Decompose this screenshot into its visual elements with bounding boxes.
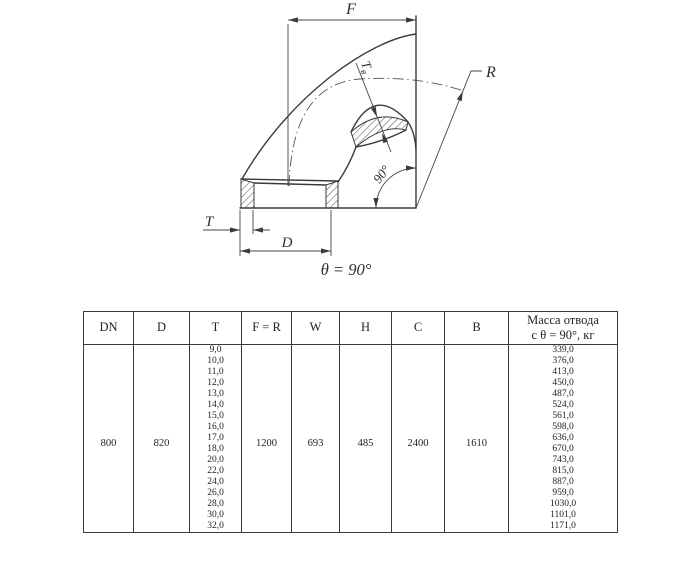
table-cell-line: 1101,0 (509, 510, 617, 521)
table-cell-line: 487,0 (509, 389, 617, 400)
table-cell-line: 11,0 (190, 367, 241, 378)
table-cell-line: 413,0 (509, 367, 617, 378)
table-cell-line: 20,0 (190, 455, 241, 466)
table-cell-line: 524,0 (509, 400, 617, 411)
table-cell-line: 561,0 (509, 411, 617, 422)
inner-arc-left (338, 147, 356, 182)
cell-h-value: 485 (339, 345, 391, 532)
col-header-h: H (339, 312, 391, 345)
datasheet-page: F R T D Тв 90° θ = 90° DN D T F = R W H … (0, 0, 700, 573)
r-leader-line (416, 71, 482, 208)
table-cell-line: 450,0 (509, 378, 617, 389)
f-arrow-right (406, 17, 416, 22)
table-cell-line: 12,0 (190, 378, 241, 389)
outer-arc (242, 34, 416, 179)
elbow-body (240, 16, 416, 208)
d-arrow-left (240, 248, 250, 253)
dim-label-f: F (345, 1, 356, 18)
table-cell-line: 1171,0 (509, 521, 617, 532)
table-cell-line: 30,0 (190, 510, 241, 521)
t-arrow-right (253, 227, 263, 232)
dimensions-table: DN D T F = R W H C B Масса отвода с θ = … (83, 311, 618, 533)
table-cell-line: 17,0 (190, 433, 241, 444)
dim-label-r: R (485, 64, 496, 81)
dimension-lines (203, 20, 482, 256)
dim-label-d: D (281, 235, 293, 251)
cell-w-value: 693 (291, 345, 339, 532)
elbow-technical-drawing: F R T D Тв 90° θ = 90° (0, 0, 700, 300)
table-cell-line: 636,0 (509, 433, 617, 444)
corner-angle-label: 90° (370, 162, 393, 186)
table-cell-line: 22,0 (190, 466, 241, 477)
table-cell-line: 18,0 (190, 444, 241, 455)
table-cell-line: 743,0 (509, 455, 617, 466)
table-cell-line: 670,0 (509, 444, 617, 455)
tv-arrow-upper (371, 107, 380, 118)
cell-mass-values: 339,0376,0413,0450,0487,0524,0561,0598,0… (508, 345, 617, 532)
r-arrow (457, 90, 466, 101)
corner-arc-arrow-top (406, 165, 416, 170)
dim-label-t: T (205, 214, 215, 230)
table-cell-line: 13,0 (190, 389, 241, 400)
table-cell-line: 9,0 (190, 345, 241, 356)
table-cell-line: 815,0 (509, 466, 617, 477)
col-header-c: C (391, 312, 444, 345)
col-header-b: B (444, 312, 508, 345)
table-cell-line: 959,0 (509, 488, 617, 499)
table-cell-line: 339,0 (509, 345, 617, 356)
dim-label-tv-sub: в (358, 68, 370, 77)
table-cell-line: 28,0 (190, 499, 241, 510)
upper-end-wall-hatch (351, 117, 408, 147)
col-header-t: T (189, 312, 241, 345)
col-header-d: D (133, 312, 189, 345)
table-cell-line: 26,0 (190, 488, 241, 499)
right-wall-section-hatch (326, 181, 338, 208)
left-wall-section-hatch (241, 179, 254, 208)
cell-f-r-value: 1200 (241, 345, 291, 532)
table-cell-line: 16,0 (190, 422, 241, 433)
inner-arc-right (408, 122, 416, 150)
f-arrow-left (288, 17, 298, 22)
drawing-caption: θ = 90° (321, 260, 372, 279)
cell-b-value: 1610 (444, 345, 508, 532)
cell-d-value: 820 (133, 345, 189, 532)
d-arrow-right (321, 248, 331, 253)
t-arrow-left (230, 227, 240, 232)
cell-dn-value: 800 (84, 345, 133, 532)
cell-c-value: 2400 (391, 345, 444, 532)
arrowheads (230, 17, 465, 253)
col-header-f-r: F = R (241, 312, 291, 345)
table-cell-line: 1030,0 (509, 499, 617, 510)
table-cell-line: 598,0 (509, 422, 617, 433)
corner-arc-arrow-bottom (373, 198, 378, 208)
table-cell-line: 15,0 (190, 411, 241, 422)
left-face-bore-edge (254, 183, 326, 185)
table-cell-line: 10,0 (190, 356, 241, 367)
table-cell-line: 376,0 (509, 356, 617, 367)
col-header-mass: Масса отвода с θ = 90°, кг (508, 312, 617, 345)
table-cell-line: 32,0 (190, 521, 241, 532)
col-header-dn: DN (84, 312, 133, 345)
table-cell-line: 14,0 (190, 400, 241, 411)
cell-t-values: 9,010,011,012,013,014,015,016,017,018,02… (189, 345, 241, 532)
col-header-w: W (291, 312, 339, 345)
table-cell-line: 887,0 (509, 477, 617, 488)
table-cell-line: 24,0 (190, 477, 241, 488)
